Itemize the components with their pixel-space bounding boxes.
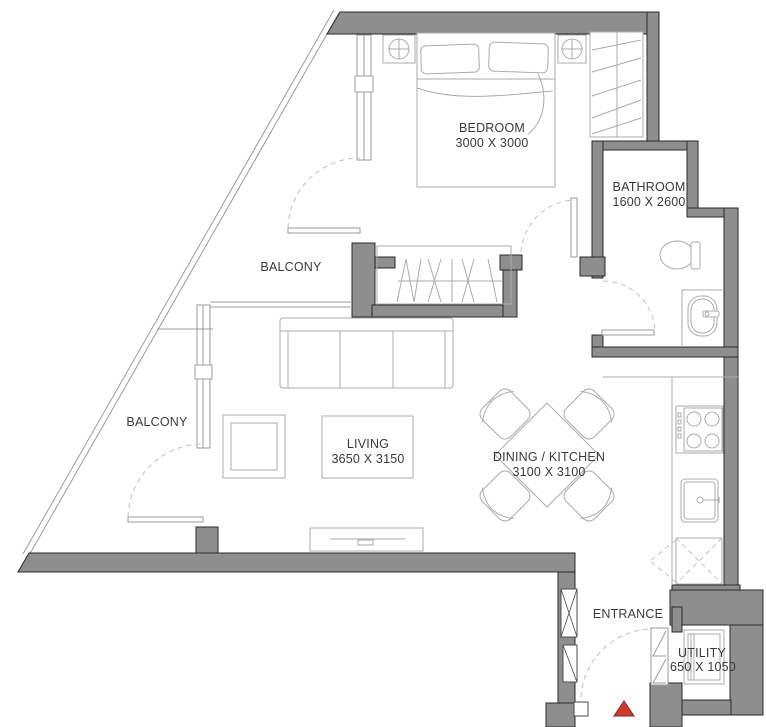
floor-plan: BEDROOM 3000 X 3000 BATHROOM 1600 X 2600… (0, 0, 766, 727)
utility-dims: 650 X 1050 (670, 660, 736, 674)
wall-closet-south (372, 305, 517, 317)
wall-bedroom-right (647, 12, 659, 146)
living-label: LIVING (347, 437, 389, 451)
wall-closet-east (503, 268, 517, 317)
living-balcony-door (128, 444, 203, 522)
wall-top (327, 12, 659, 34)
entry-marker (614, 701, 634, 716)
utility-label: UTILITY (678, 646, 726, 660)
walk-in-closet (377, 246, 511, 304)
bedroom-dims: 3000 X 3000 (455, 136, 528, 150)
entrance-label: ENTRANCE (593, 607, 663, 621)
balcony-lower-label: BALCONY (126, 415, 188, 429)
wall-bathroom-right-upper (687, 141, 698, 212)
wall-bathroom-left-nib (592, 335, 603, 347)
toilet (660, 241, 700, 269)
bathroom-fixtures (660, 241, 722, 347)
living-dims: 3650 X 3150 (331, 452, 404, 466)
bedroom-entry-door (521, 198, 577, 257)
wall-utility-left-jamb (672, 607, 682, 632)
double-bed (417, 33, 555, 187)
wall-bathroom-top (597, 141, 698, 150)
living-top-ledge (210, 302, 352, 307)
sofa (280, 318, 453, 388)
wall-balcony-step-block (196, 527, 218, 553)
bathroom-dims: 1600 X 2600 (612, 195, 685, 209)
bedroom-wardrobe (590, 32, 643, 137)
wall-living-bottom (18, 553, 575, 572)
bedroom-balcony-door (288, 158, 360, 233)
living-furniture (223, 318, 453, 551)
armchair (223, 415, 285, 478)
wall-utility-left-lower (650, 683, 682, 727)
bathroom-door (602, 281, 655, 335)
wall-closet-west-tab (375, 257, 395, 268)
balcony-edge-lines (23, 10, 339, 557)
bedroom-label: BEDROOM (459, 121, 525, 135)
dining-kitchen-dims: 3100 X 3100 (512, 465, 585, 479)
shaft-box (561, 589, 577, 637)
tv-unit (310, 528, 423, 551)
balcony-upper-label: BALCONY (260, 260, 322, 274)
door-jamb (574, 702, 588, 716)
wall-bathroom-bottom (592, 347, 738, 357)
appliance-space (650, 538, 722, 584)
kitchen-sink (681, 479, 719, 522)
bathroom-label: BATHROOM (613, 180, 686, 194)
utility-bifold-door (651, 628, 668, 685)
room-labels: BEDROOM 3000 X 3000 BATHROOM 1600 X 2600… (126, 121, 736, 674)
floor-plan-canvas: BEDROOM 3000 X 3000 BATHROOM 1600 X 2600… (0, 0, 766, 727)
pillow-right (488, 42, 548, 73)
dining-kitchen-label: DINING / KITCHEN (493, 450, 605, 464)
nightstand-right (558, 35, 586, 63)
pillow-left (421, 44, 480, 74)
nightstand-left (383, 35, 415, 63)
wall-hall-nib (580, 257, 605, 276)
kitchen (603, 377, 738, 585)
living-window (195, 305, 212, 448)
shaft-box (563, 645, 577, 682)
entrance-door-swing (581, 629, 651, 697)
wall-corridor-foot (546, 703, 575, 727)
wall-utility-top (670, 590, 763, 625)
washbasin (688, 296, 719, 336)
stove (676, 406, 723, 453)
bedroom-window (355, 35, 373, 160)
wall-right-lower (724, 208, 738, 592)
